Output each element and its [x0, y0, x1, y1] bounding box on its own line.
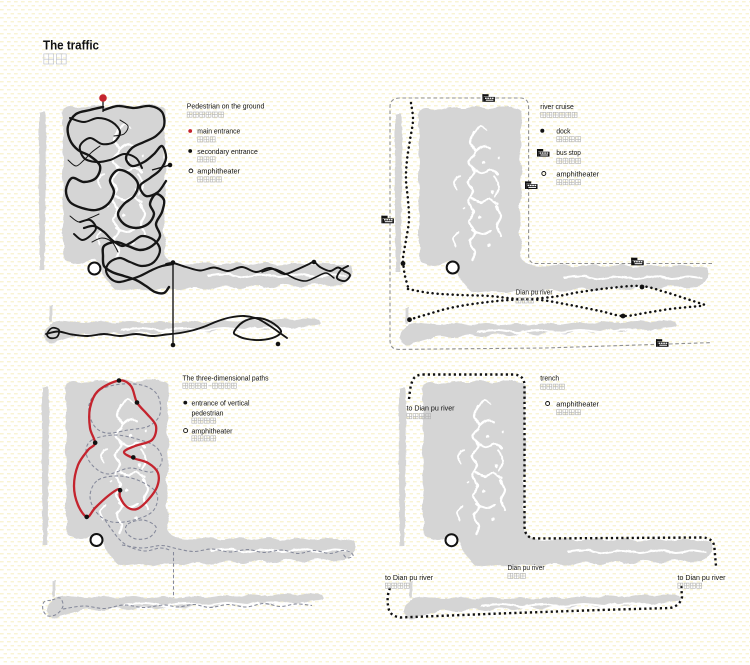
svg-text:trench: trench — [540, 374, 559, 383]
svg-text:river cruise: river cruise — [540, 102, 574, 111]
svg-text:to Dian pu river: to Dian pu river — [407, 403, 456, 412]
svg-text:to Dian pu river: to Dian pu river — [678, 573, 727, 582]
svg-text:bus stop: bus stop — [556, 148, 581, 157]
svg-text:Dian pu river: Dian pu river — [508, 563, 545, 572]
svg-text:The three-dimensional paths: The three-dimensional paths — [183, 374, 269, 383]
svg-text:entrance of vertical: entrance of vertical — [192, 398, 250, 407]
svg-text:amphitheater: amphitheater — [556, 170, 599, 179]
svg-text:to Dian pu river: to Dian pu river — [385, 573, 434, 582]
svg-text:secondary entrance: secondary entrance — [197, 147, 257, 156]
svg-text:Pedestrian on the ground: Pedestrian on the ground — [187, 101, 264, 110]
svg-text:pedestrian: pedestrian — [192, 409, 224, 418]
svg-text:Dian pu river: Dian pu river — [516, 287, 553, 296]
svg-text:dock: dock — [556, 127, 570, 136]
svg-text:amphitheater: amphitheater — [192, 427, 234, 436]
svg-text:The traffic: The traffic — [43, 38, 99, 53]
svg-text:amphitheater: amphitheater — [197, 167, 240, 176]
svg-text:main entrance: main entrance — [197, 127, 240, 136]
svg-text:amphitheater: amphitheater — [556, 399, 599, 408]
